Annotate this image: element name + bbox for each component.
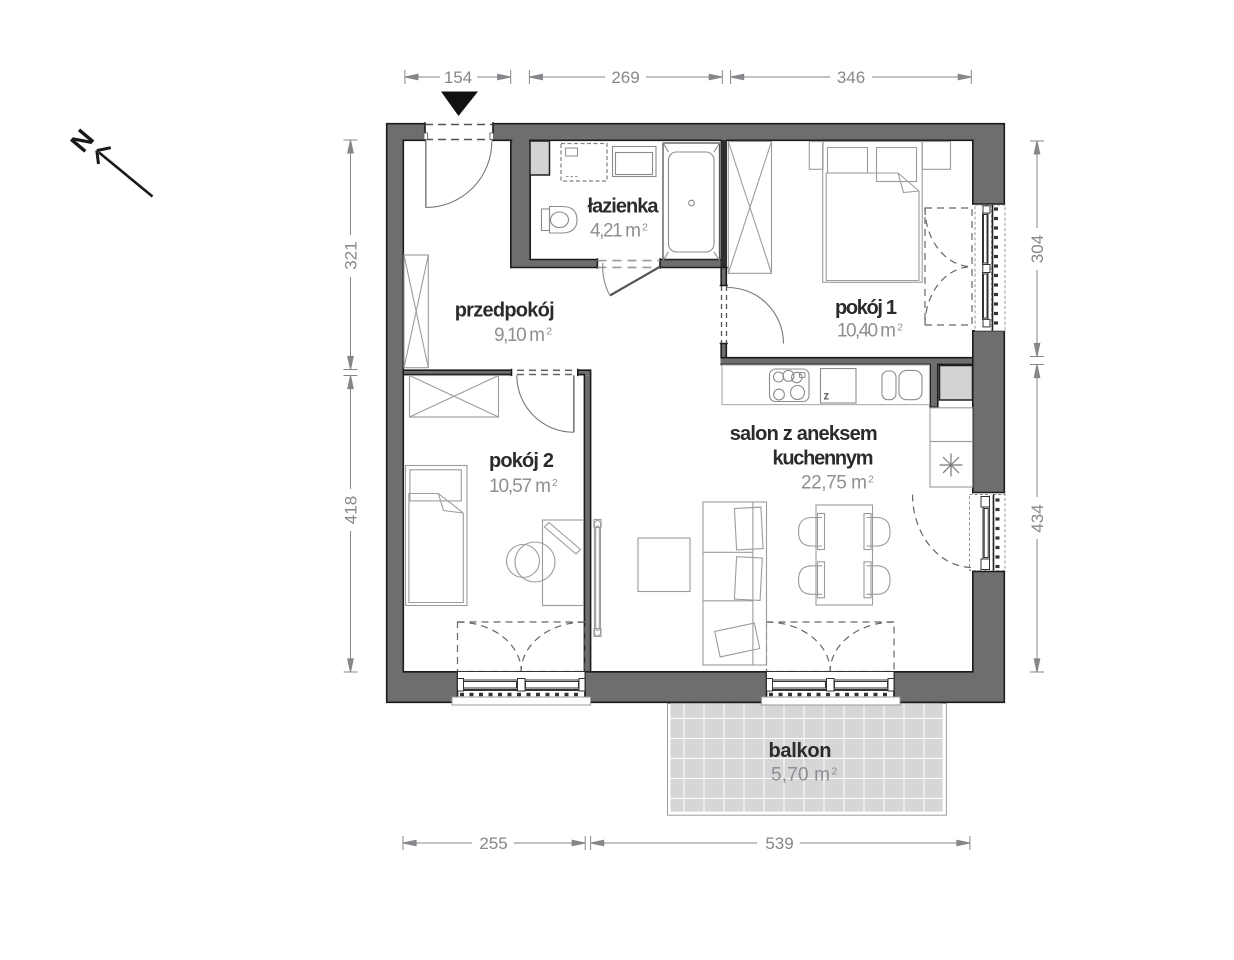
svg-text:2: 2 [552,477,558,489]
svg-text:269: 269 [611,68,639,87]
svg-text:łazienka: łazienka [588,196,660,218]
svg-text:9,10 m: 9,10 m [494,325,545,346]
svg-text:346: 346 [837,68,865,87]
svg-text:z: z [824,391,830,403]
svg-text:balkon: balkon [769,740,832,762]
svg-text:2: 2 [546,326,552,338]
svg-text:321: 321 [342,241,361,269]
svg-text:434: 434 [1028,504,1047,532]
svg-text:pokój 1: pokój 1 [835,297,897,319]
svg-text:pokój 2: pokój 2 [489,450,554,472]
svg-text:22,75 m: 22,75 m [801,473,867,494]
svg-text:2: 2 [642,222,648,234]
svg-text:255: 255 [479,834,507,853]
svg-text:kuchennym: kuchennym [773,448,874,470]
svg-text:2: 2 [897,322,903,334]
svg-text:przedpokój: przedpokój [455,300,555,322]
svg-text:5,70 m: 5,70 m [771,765,830,786]
svg-text:salon z aneksem: salon z aneksem [730,423,878,445]
svg-text:4,21 m: 4,21 m [590,221,641,242]
svg-text:10,57 m: 10,57 m [489,476,551,497]
svg-text:2: 2 [832,766,838,778]
svg-text:539: 539 [765,834,793,853]
svg-text:2: 2 [868,474,874,486]
svg-text:418: 418 [342,496,361,524]
svg-text:304: 304 [1028,235,1047,263]
svg-text:10,40 m: 10,40 m [837,321,896,342]
svg-text:154: 154 [444,68,472,87]
